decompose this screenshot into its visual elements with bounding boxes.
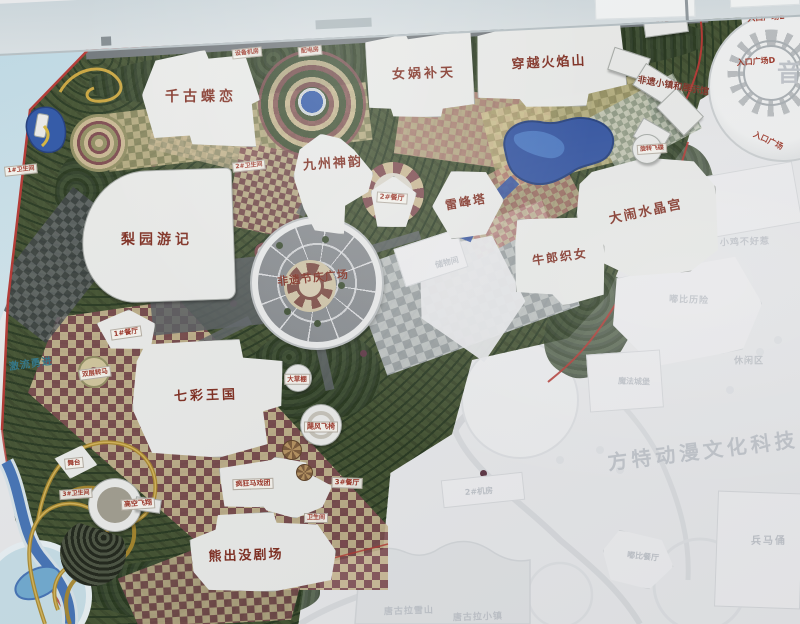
label-leisure-area: 休闲区 bbox=[734, 358, 764, 367]
label-dubi-adventure: 嘟比历险 bbox=[669, 296, 709, 306]
label-chicks: 小鸡不好惹 bbox=[720, 238, 770, 249]
label-jiuzhou-shenyun: 九州神韵 bbox=[303, 155, 364, 172]
label-liyuan-youji: 梨园游记 bbox=[121, 233, 193, 247]
circus-tent bbox=[282, 440, 302, 460]
faded-building-terracotta bbox=[714, 491, 800, 610]
label-sky-flyer: 高空飞翔 bbox=[121, 497, 156, 510]
circus-tent bbox=[296, 464, 313, 481]
label-xiongchumo-juchang: 熊出没剧场 bbox=[208, 548, 283, 564]
ring-plaza bbox=[70, 114, 128, 172]
label-toilet-4: 卫生间 bbox=[304, 513, 328, 523]
wall-mark bbox=[315, 18, 371, 30]
wall-panel bbox=[595, 0, 696, 20]
mini-coaster-track bbox=[60, 69, 121, 101]
label-crazy-circus: 疯狂马戏团 bbox=[232, 478, 273, 490]
park-map-photo: 千古蝶恋梨园游记女娲补天穿越火焰山九州神韵雷峰塔大闹水晶宫牛郎织女七彩王国熊出没… bbox=[0, 0, 800, 624]
label-chuanyue-huoyanshan: 穿越火焰山 bbox=[511, 55, 587, 72]
label-terracotta: 兵马俑 bbox=[751, 537, 787, 547]
label-magic-castle: 魔法城堡 bbox=[618, 377, 650, 386]
label-qiangu-dielian: 千古蝶恋 bbox=[165, 90, 237, 104]
label-music-partial: 音 bbox=[777, 61, 800, 85]
label-grass-shed: 大草棚 bbox=[284, 374, 310, 385]
label-nuwa-butian: 女娲补天 bbox=[392, 66, 456, 81]
label-qicai-wangguo: 七彩王国 bbox=[174, 388, 238, 403]
label-restaurant-3: 3#餐厅 bbox=[331, 477, 362, 489]
label-hurricane-chairs: 飓风飞椅 bbox=[304, 422, 338, 433]
label-stage: 舞台 bbox=[64, 457, 84, 469]
wall-panel bbox=[729, 0, 800, 8]
plaza-trees bbox=[276, 242, 283, 249]
label-restaurant-2: 2#餐厅 bbox=[376, 191, 407, 204]
label-flying-saucer: 旋转飞碟 bbox=[637, 143, 668, 155]
wall-mark bbox=[101, 36, 111, 45]
label-tangula-town: 唐古拉小镇 bbox=[453, 613, 503, 624]
label-tangula-snow-mountain: 唐古拉雪山 bbox=[384, 607, 434, 618]
